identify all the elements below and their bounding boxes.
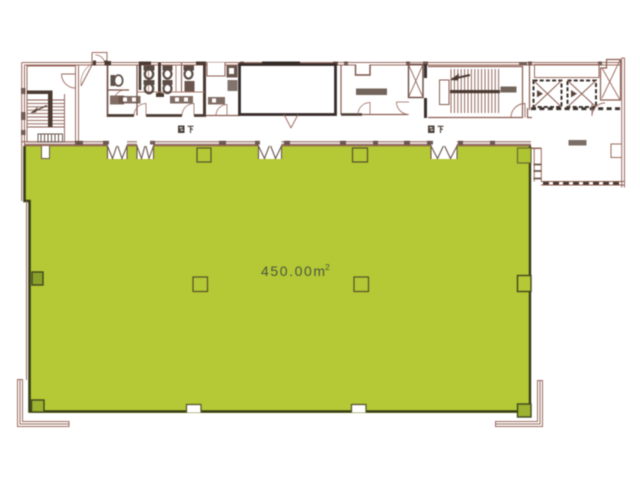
- svg-text:2: 2: [325, 262, 330, 272]
- svg-text:450.00m: 450.00m: [261, 263, 327, 279]
